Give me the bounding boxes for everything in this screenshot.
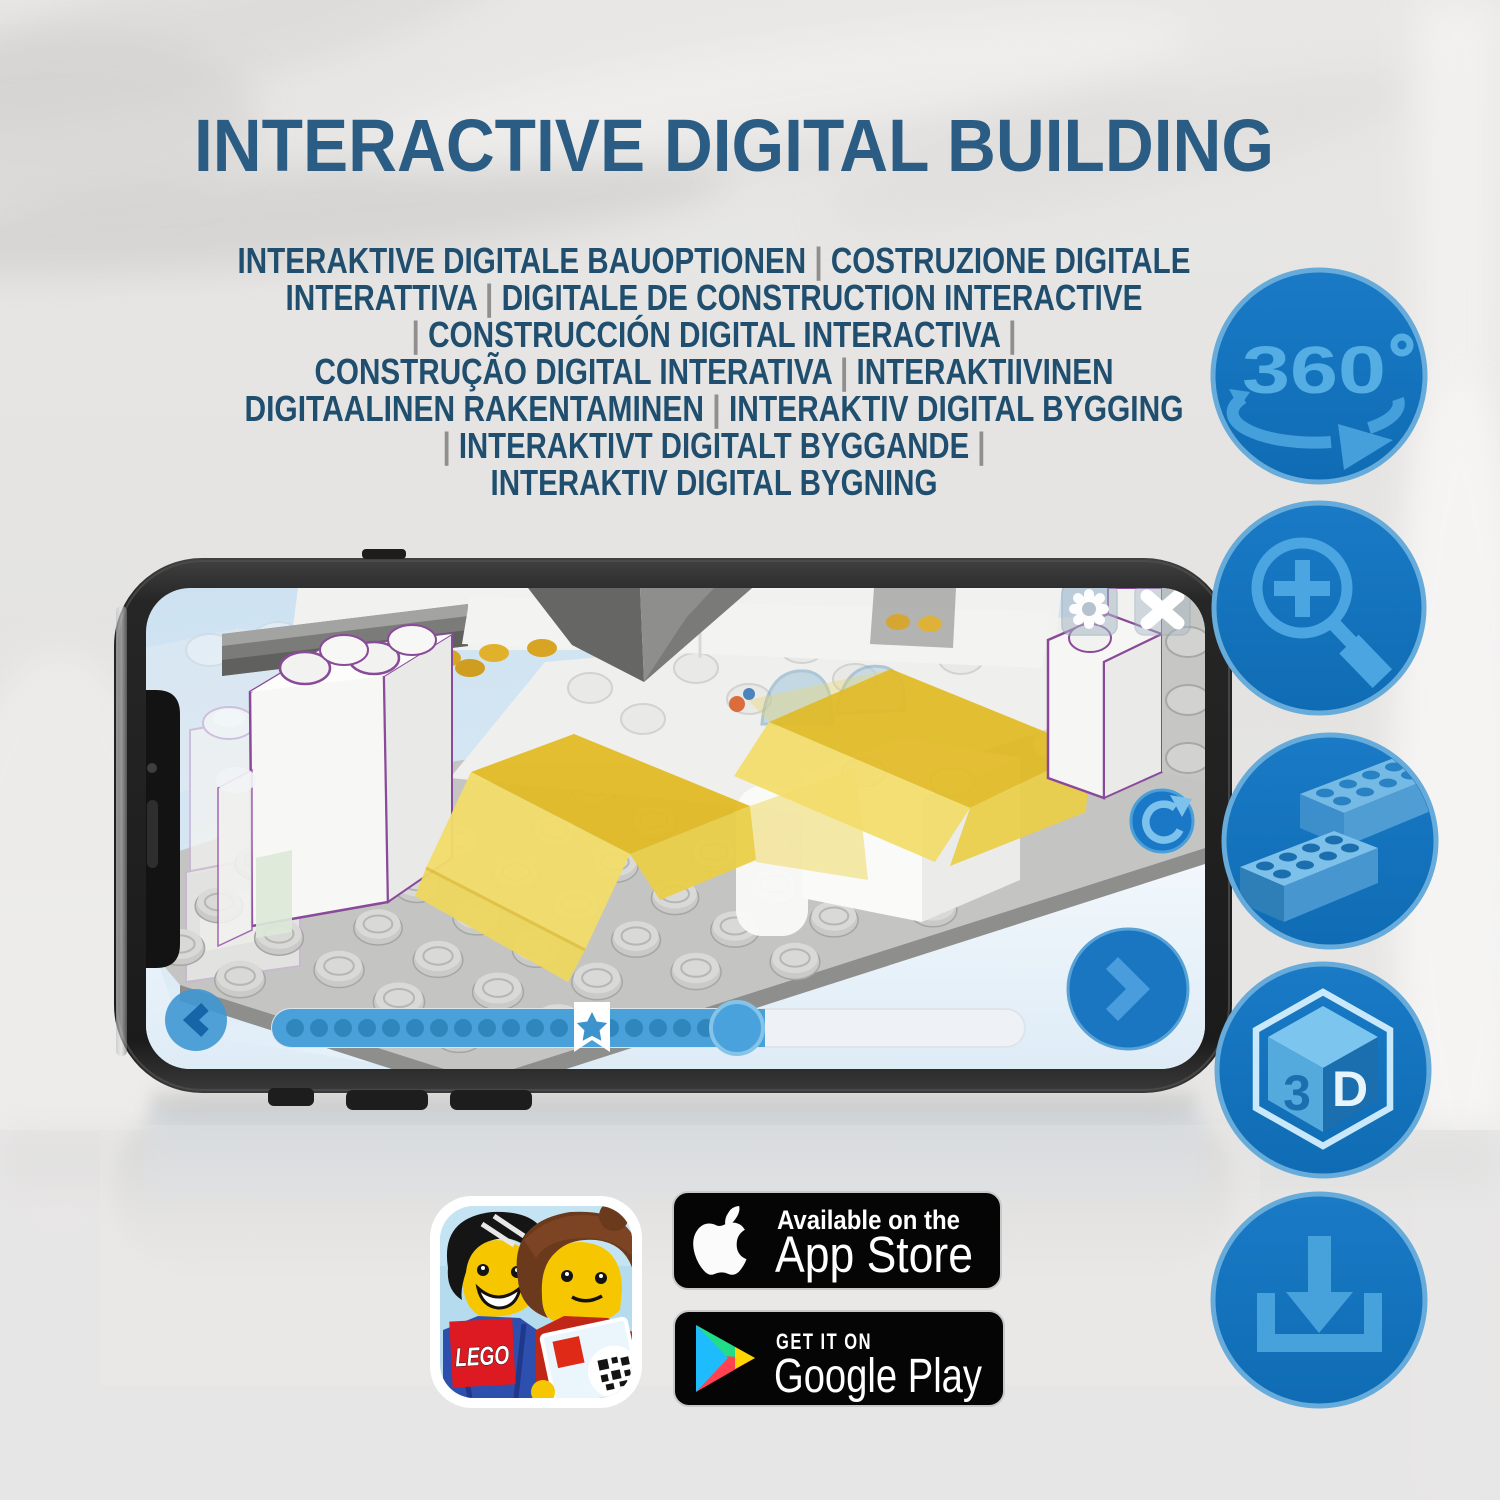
svg-text:CONSTRUÇÃO DIGITAL INTERATIVA: CONSTRUÇÃO DIGITAL INTERATIVA | INTERAKT… [315, 350, 1114, 393]
svg-text:D: D [1332, 1061, 1368, 1117]
svg-text:Google Play: Google Play [774, 1350, 982, 1403]
svg-text:LEGO: LEGO [454, 1340, 509, 1373]
svg-text:INTERACTIVE DIGITAL BUILDING: INTERACTIVE DIGITAL BUILDING [194, 104, 1274, 187]
svg-text:INTERAKTIVE DIGITALE BAUOPTION: INTERAKTIVE DIGITALE BAUOPTIONEN | COSTR… [238, 240, 1191, 282]
svg-text:INTERAKTIV DIGITAL BYGNING: INTERAKTIV DIGITAL BYGNING [491, 462, 938, 503]
svg-text:DIGITAALINEN RAKENTAMINEN | IN: DIGITAALINEN RAKENTAMINEN | INTERAKTIV D… [245, 388, 1184, 430]
svg-text:App Store: App Store [775, 1226, 973, 1283]
svg-text:3: 3 [1283, 1065, 1311, 1121]
svg-text:INTERATTIVA | DIGITALE DE CONS: INTERATTIVA | DIGITALE DE CONSTRUCTION I… [286, 277, 1143, 319]
svg-text:| CONSTRUCCIÓN DIGITAL INTERAC: | CONSTRUCCIÓN DIGITAL INTERACTIVA | [412, 313, 1017, 356]
svg-text:360: 360 [1242, 333, 1386, 408]
svg-text:| INTERAKTIVT DIGITALT BYGGAND: | INTERAKTIVT DIGITALT BYGGANDE | [443, 425, 986, 467]
